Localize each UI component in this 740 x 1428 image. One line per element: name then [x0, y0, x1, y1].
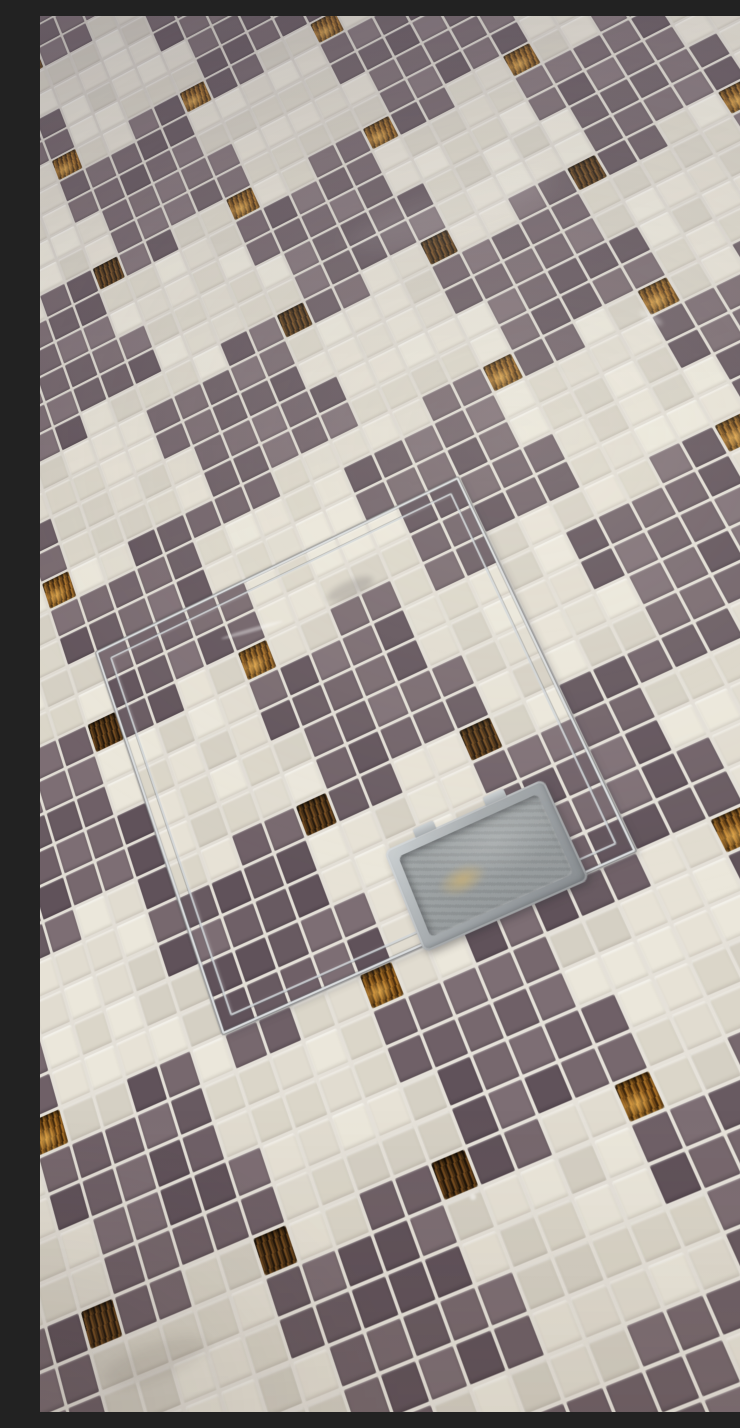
mosaic-tile — [137, 1366, 180, 1412]
plate-label-stain — [433, 856, 492, 905]
mosaic-tile — [126, 1324, 169, 1375]
mosaic-tile — [160, 1310, 203, 1361]
floor-photo: Oblique overhead photo of a cream and ta… — [40, 16, 740, 1412]
mosaic-tile — [195, 1295, 239, 1346]
mosaic-floor — [40, 16, 740, 1412]
mosaic-tile — [91, 1339, 133, 1390]
mosaic-tile — [57, 1353, 99, 1404]
mosaic-tile — [208, 1336, 252, 1388]
mosaic-tile — [172, 1351, 216, 1403]
